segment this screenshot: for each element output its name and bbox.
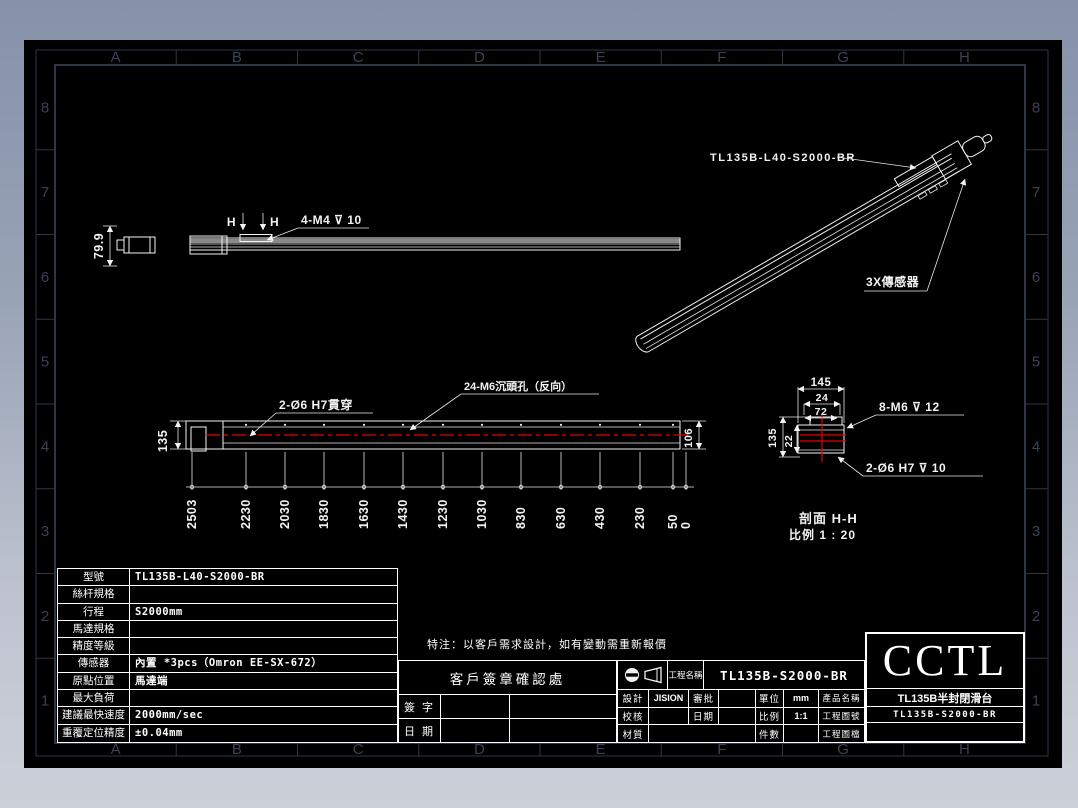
spec-value: 2000mm/sec [130, 707, 397, 723]
grid-row-label: 7 [1032, 184, 1040, 201]
spec-value [130, 690, 397, 706]
drawing-no-label: 工程圖號 [819, 708, 864, 725]
material-value [649, 725, 756, 742]
grid-col-label: B [232, 741, 242, 758]
company-logo: CCTL [867, 634, 1023, 688]
spec-row: 重覆定位精度±0.04mm [58, 725, 397, 742]
grid-row-label: 7 [41, 184, 49, 201]
spec-label: 精度等級 [58, 638, 130, 654]
sign-label: 簽 字 [399, 695, 441, 718]
spec-row: 精度等級 [58, 638, 397, 655]
project-name-label: 工程名稱 [668, 661, 704, 689]
grid-row-label: 3 [41, 523, 49, 540]
iso-view: TL135B-L40-S2000-BR 3X傳感器 [629, 125, 1000, 359]
station-dim-label: 50 [666, 514, 680, 529]
section-offset-dim: 22 [783, 435, 795, 448]
spec-value: TL135B-L40-S2000-BR [130, 569, 397, 585]
custom-note: 特注：以客戶需求設計，如有變動需重新報價 [427, 636, 667, 652]
image-viewer-background: AABBCCDDEEFFGGHH8877665544332211 79.9 [0, 0, 1078, 808]
spec-label: 絲杆規格 [58, 586, 130, 602]
title-block: 工程名稱 TL135B-S2000-BR 設計 JISION 審批 單位 mm … [617, 660, 865, 743]
grid-col-label: A [111, 49, 121, 66]
front-hole-callout: 2-Ø6 H7貫穿 [279, 397, 353, 412]
spec-label: 重覆定位精度 [58, 725, 130, 742]
qty-label: 件數 [756, 725, 784, 742]
station-dim-label: 430 [593, 507, 607, 529]
side-thread-callout: 4-M4 ⊽ 10 [301, 213, 362, 227]
spec-label: 傳感器 [58, 655, 130, 671]
unit-label: 單位 [756, 690, 784, 707]
front-counterbore-callout: 24-M6沉頭孔（反向） [464, 379, 572, 393]
grid-row-label: 8 [1032, 99, 1040, 116]
section-scale-caption: 比例 1 : 20 [789, 527, 856, 542]
drawing-no-value: TL135B-S2000-BR [867, 706, 1023, 722]
station-dim-label: 830 [514, 507, 528, 529]
spec-row: 建議最快速度2000mm/sec [58, 707, 397, 724]
grid-col-label: H [959, 741, 970, 758]
spec-label: 馬達規格 [58, 621, 130, 637]
spec-table: 型號TL135B-L40-S2000-BR絲杆規格行程S2000mm馬達規格精度… [57, 568, 398, 743]
material-label: 材質 [618, 725, 649, 742]
station-dim-label: 2030 [278, 499, 292, 529]
spec-label: 建議最快速度 [58, 707, 130, 723]
grid-row-label: 6 [1032, 269, 1040, 286]
signature-box-title: 客戶簽章確認處 [399, 661, 616, 695]
spec-value: 內置 *3pcs（Omron EE-SX-672） [130, 655, 397, 671]
spec-value: ±0.04mm [130, 725, 397, 742]
grid-row-label: 2 [1032, 608, 1040, 625]
station-dim-label: 0 [679, 522, 693, 529]
spec-value: 馬達端 [130, 673, 397, 689]
date-value [719, 708, 756, 725]
iso-model-callout: TL135B-L40-S2000-BR [710, 152, 856, 164]
product-name-value: TL135B半封閉滑台 [867, 688, 1023, 706]
side-view: 79.9 H H 4-M4 ⊽ 10 [92, 213, 680, 266]
designer-label: 設計 [618, 690, 649, 707]
date-field-wide [510, 719, 616, 742]
grid-col-label: H [959, 49, 970, 66]
front-height-dim: 135 [156, 430, 170, 452]
station-dim-label: 1630 [357, 499, 371, 529]
section-mark-h-left: H [227, 215, 236, 229]
spec-row: 傳感器內置 *3pcs（Omron EE-SX-672） [58, 655, 397, 672]
iso-carriage [894, 157, 937, 187]
iso-sensor [918, 192, 927, 199]
spec-row: 型號TL135B-L40-S2000-BR [58, 569, 397, 586]
date-label: 日期 [689, 708, 719, 725]
approver-label: 審批 [689, 690, 719, 707]
station-dim-label: 2503 [185, 499, 199, 529]
grid-col-label: D [474, 741, 485, 758]
grid-row-label: 5 [41, 354, 49, 371]
station-dim-label: 1030 [475, 499, 489, 529]
front-right-height-dim: 106 [683, 428, 695, 448]
spec-label: 原點位置 [58, 673, 130, 689]
grid-col-label: D [474, 49, 485, 66]
spec-value [130, 586, 397, 602]
grid-row-label: 2 [41, 608, 49, 625]
file-label: 工程圖檔 [819, 725, 864, 742]
grid-col-label: G [837, 741, 849, 758]
spec-row: 最大負荷 [58, 690, 397, 707]
spec-value: S2000mm [130, 604, 397, 620]
grid-col-label: B [232, 49, 242, 66]
unit-value: mm [784, 690, 819, 707]
grid-row-label: 8 [41, 99, 49, 116]
station-dim-label: 2230 [239, 499, 253, 529]
spec-label: 型號 [58, 569, 130, 585]
section-mid-dim: 72 [815, 406, 828, 418]
grid-row-label: 4 [1032, 438, 1040, 455]
iso-sensor-callout: 3X傳感器 [866, 274, 920, 289]
date-label: 日 期 [399, 719, 441, 742]
grid-row-label: 4 [41, 438, 49, 455]
date-field [441, 719, 510, 742]
section-caption: 剖面 H-H [799, 511, 858, 526]
scale-label: 比例 [756, 708, 784, 725]
front-view: 135 106 25032230203018301630143012301030… [156, 379, 706, 529]
grid-col-label: F [717, 49, 726, 66]
iso-sensor [939, 180, 948, 187]
spec-row: 行程S2000mm [58, 604, 397, 621]
section-hole-callout: 2-Ø6 H7 ⊽ 10 [866, 461, 946, 475]
station-dim-label: 230 [633, 507, 647, 529]
grid-row-label: 3 [1032, 523, 1040, 540]
product-name-label: 產品名稱 [819, 690, 864, 707]
section-width-dim: 145 [811, 377, 832, 389]
cad-drawing-canvas: AABBCCDDEEFFGGHH8877665544332211 79.9 [24, 40, 1062, 768]
grid-col-label: E [596, 49, 606, 66]
grid-col-label: C [353, 741, 364, 758]
file-value-cell [867, 722, 1023, 741]
section-mark-h-right: H [270, 215, 279, 229]
scale-value: 1:1 [784, 708, 819, 725]
spec-value [130, 621, 397, 637]
station-dim-label: 1830 [317, 499, 331, 529]
section-pitch-dim: 24 [816, 392, 829, 404]
approver-value [719, 690, 756, 707]
side-height-dim: 79.9 [92, 233, 106, 259]
station-dim-label: 630 [554, 507, 568, 529]
spec-value [130, 638, 397, 654]
section-thread-callout: 8-M6 ⊽ 12 [879, 400, 940, 414]
customer-signature-box: 客戶簽章確認處 簽 字 日 期 [398, 660, 617, 743]
designer-value: JISION [649, 690, 689, 707]
spec-label: 最大負荷 [58, 690, 130, 706]
spec-row: 馬達規格 [58, 621, 397, 638]
checker-value [649, 708, 689, 725]
grid-col-label: G [837, 49, 849, 66]
grid-row-label: 1 [41, 693, 49, 710]
spec-row: 絲杆規格 [58, 586, 397, 603]
project-name-value: TL135B-S2000-BR [704, 661, 864, 689]
station-dim-label: 1230 [436, 499, 450, 529]
qty-value [784, 725, 819, 742]
spec-label: 行程 [58, 604, 130, 620]
grid-col-label: A [111, 741, 121, 758]
company-block: CCTL TL135B半封閉滑台 TL135B-S2000-BR [865, 632, 1025, 743]
checker-label: 校核 [618, 708, 649, 725]
grid-row-label: 5 [1032, 354, 1040, 371]
section-view: 145 24 72 135 22 8-M6 ⊽ 12 [767, 377, 983, 542]
front-station-dimensions: 2503223020301830163014301230103083063043… [185, 424, 693, 529]
sign-field-wide [510, 695, 616, 718]
grid-row-label: 6 [41, 269, 49, 286]
station-dim-label: 1430 [396, 499, 410, 529]
spec-row: 原點位置馬達端 [58, 673, 397, 690]
grid-col-label: F [717, 741, 726, 758]
iso-sensor [928, 186, 937, 193]
section-height-dim: 135 [767, 428, 779, 448]
grid-col-label: C [353, 49, 364, 66]
sign-field [441, 695, 510, 718]
grid-row-label: 1 [1032, 693, 1040, 710]
projection-symbol-icon [618, 661, 668, 689]
grid-col-label: E [596, 741, 606, 758]
